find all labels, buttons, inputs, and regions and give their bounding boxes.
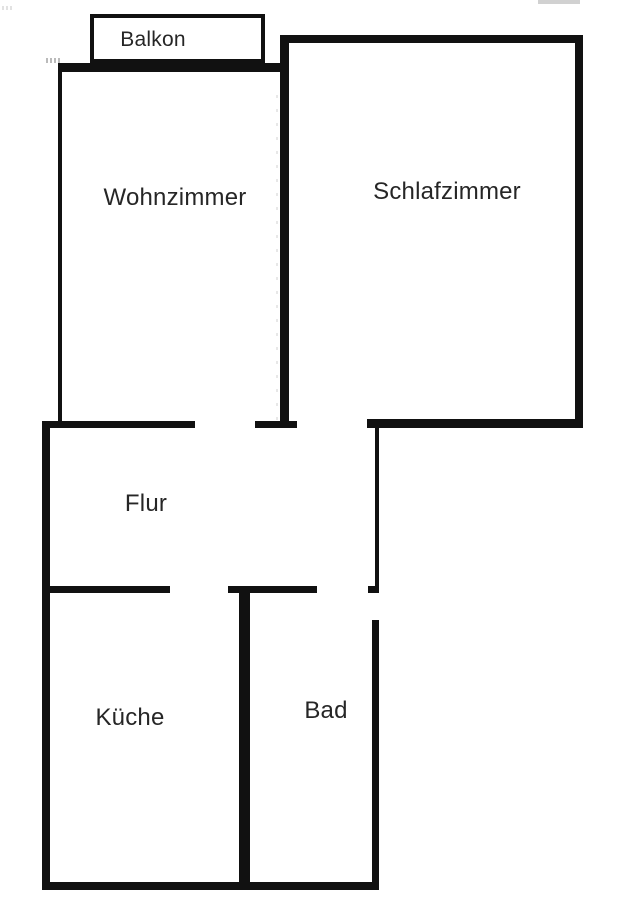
scan-artifact-top-left-corner: [2, 6, 14, 10]
wall-outer-bottom: [42, 882, 379, 890]
wall-schlafzimmer-right: [575, 35, 583, 427]
wall-outer-left: [42, 421, 50, 890]
wall-kueche-bad-divider: [239, 589, 250, 882]
scan-artifact-left-of-balkon: [46, 58, 61, 63]
room-label-bad: Bad: [304, 697, 347, 725]
floor-plan: Balkon Wohnzimmer Schlafzimmer Flur Küch…: [0, 0, 626, 900]
wall-schlafzimmer-top: [280, 35, 583, 43]
wall-bad-right: [372, 620, 379, 888]
wall-flur-right: [375, 426, 379, 593]
wall-wohnzimmer-top: [58, 63, 289, 72]
wall-wohnzimmer-schlafzimmer-divider: [280, 35, 289, 428]
wall-wohnzimmer-left: [58, 63, 62, 428]
scan-artifact-divider-speckles: [276, 95, 278, 425]
room-label-schlafzimmer: Schlafzimmer: [373, 178, 521, 206]
wall-schlafzimmer-bottom: [367, 419, 583, 428]
room-label-wohnzimmer: Wohnzimmer: [104, 184, 247, 212]
room-label-balkon: Balkon: [120, 28, 185, 52]
room-label-flur: Flur: [125, 490, 167, 518]
scan-artifact-top-right: [538, 0, 580, 4]
wall-flur-top-left: [42, 421, 195, 428]
room-label-kueche: Küche: [95, 704, 164, 732]
wall-flur-bottom-right-tick: [368, 586, 379, 593]
wall-flur-bottom-left: [42, 586, 170, 593]
